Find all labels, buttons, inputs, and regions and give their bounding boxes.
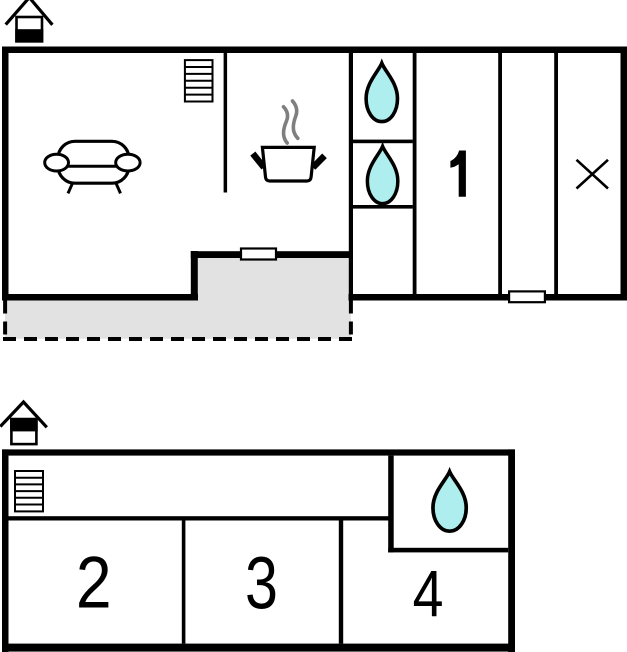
svg-text:2: 2 [76, 541, 112, 623]
svg-text:4: 4 [413, 557, 444, 631]
svg-text:3: 3 [245, 542, 278, 625]
